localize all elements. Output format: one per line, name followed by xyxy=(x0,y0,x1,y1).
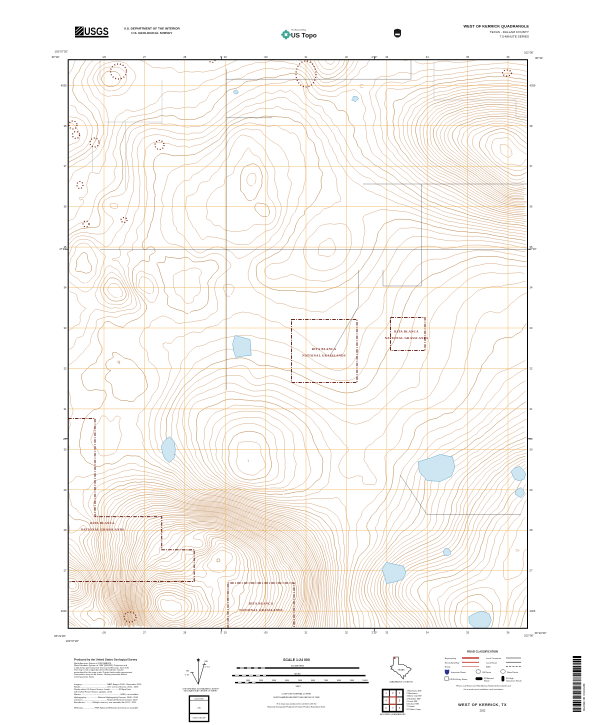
svg-text:NATIONAL GRASSLANDS: NATIONAL GRASSLANDS xyxy=(81,527,125,531)
svg-text:ADJOINING QUADRANGLES: ADJOINING QUADRANGLES xyxy=(380,713,406,716)
svg-text:Route: Route xyxy=(484,679,490,682)
svg-text:FEET: FEET xyxy=(296,686,302,688)
svg-text:36°22'30": 36°22'30" xyxy=(535,631,547,635)
svg-text:3 Boise City SW: 3 Boise City SW xyxy=(407,695,422,698)
svg-text:US Topo: US Topo xyxy=(291,33,317,40)
svg-text:Wetlands.....................F: Wetlands.....................FWS Nationa… xyxy=(74,706,139,709)
svg-text:NATIONAL GRASSLANDS: NATIONAL GRASSLANDS xyxy=(302,353,346,357)
svg-text:Imagery.......................: Imagery.................................… xyxy=(74,683,142,686)
svg-text:4039: 4039 xyxy=(530,83,536,87)
svg-text:entering private lands.: entering private lands. xyxy=(74,675,95,678)
svg-text:NORTH AMERICAN VERTICAL DATUM: NORTH AMERICAN VERTICAL DATUM OF 1988 xyxy=(274,696,321,699)
svg-text:36°30': 36°30' xyxy=(52,55,60,59)
svg-text:WEST OF KERRICK QUADRANGLE: WEST OF KERRICK QUADRANGLE xyxy=(464,24,530,29)
svg-text:US Route: US Route xyxy=(482,671,492,674)
svg-text:7.5-MINUTE SERIES: 7.5-MINUTE SERIES xyxy=(500,35,529,39)
svg-text:25': 25' xyxy=(530,437,534,441)
svg-text:QUADRANGLE LOCATION: QUADRANGLE LOCATION xyxy=(389,680,413,683)
svg-text:Interstate Route: Interstate Route xyxy=(451,671,467,674)
svg-text:MN: MN xyxy=(205,661,209,663)
svg-text:Expressway: Expressway xyxy=(445,657,457,660)
svg-text:for current travel conditions: for current travel conditions and restri… xyxy=(464,688,504,691)
svg-text:4026: 4026 xyxy=(61,609,67,613)
svg-text:102°00': 102°00' xyxy=(524,50,534,54)
svg-text:Contours......................: Contours................................… xyxy=(74,698,138,701)
svg-text:36°22'30": 36°22'30" xyxy=(54,634,66,638)
svg-text:This map was produced to confo: This map was produced to conform with th… xyxy=(276,703,317,706)
svg-text:WEST OF KERRICK, TX: WEST OF KERRICK, TX xyxy=(458,703,507,707)
svg-text:4WD: 4WD xyxy=(486,667,491,669)
svg-text:RITA BLANCA: RITA BLANCA xyxy=(312,347,337,351)
svg-text:Clearance Route: Clearance Route xyxy=(506,679,522,682)
svg-text:U.S. GEOLOGICAL SURVEY: U.S. GEOLOGICAL SURVEY xyxy=(131,31,173,35)
svg-text:Roads.........................: Roads...................................… xyxy=(74,685,139,688)
svg-text:102°00': 102°00' xyxy=(524,633,534,637)
svg-text:4026: 4026 xyxy=(530,609,536,613)
svg-text:State Route: State Route xyxy=(507,671,519,674)
svg-text:Produced by the United States: Produced by the United States Geological… xyxy=(74,657,138,661)
svg-text:726: 726 xyxy=(102,55,106,59)
svg-text:730: 730 xyxy=(264,55,268,59)
svg-text:8 Chilton Camp: 8 Chilton Camp xyxy=(407,708,422,711)
svg-text:Ramp: Ramp xyxy=(445,667,451,669)
svg-text:2022: 2022 xyxy=(480,709,486,713)
svg-text:Boundaries..............Multip: Boundaries..............Multiple sources… xyxy=(74,701,137,704)
svg-text:102°07'30": 102°07'30" xyxy=(54,50,68,54)
svg-text:The National Map: The National Map xyxy=(291,28,306,31)
svg-text:5 Lautz NW: 5 Lautz NW xyxy=(407,700,418,703)
svg-text:Local Road: Local Road xyxy=(486,662,497,664)
svg-text:4039: 4039 xyxy=(61,83,67,87)
svg-text:25': 25' xyxy=(63,437,67,441)
svg-text:Names.........................: Names...................................… xyxy=(74,693,139,696)
svg-text:RITA BLANCA: RITA BLANCA xyxy=(394,330,419,334)
svg-text:USGS STORE: USGS STORE xyxy=(194,698,203,700)
svg-text:1° 31': 1° 31' xyxy=(185,675,191,677)
svg-text:726: 726 xyxy=(102,631,106,635)
svg-text:U.S. DEPARTMENT OF THE INTERIO: U.S. DEPARTMENT OF THE INTERIOR xyxy=(124,26,181,30)
svg-text:Roads within US Forest Service: Roads within US Forest Service Lands....… xyxy=(74,688,132,691)
svg-text:Local Connector: Local Connector xyxy=(486,657,501,660)
svg-text:with limited Forest Service up: with limited Forest Service updates, 201… xyxy=(74,691,113,694)
svg-text:2'30": 2'30" xyxy=(372,631,378,635)
svg-text:Secondary Hwy: Secondary Hwy xyxy=(445,661,461,664)
svg-text:Hydrography...................: Hydrography.....................National… xyxy=(74,696,139,699)
svg-text:National Geospatial Program US: National Geospatial Program US Topo Prod… xyxy=(267,706,326,709)
svg-text:36°30': 36°30' xyxy=(535,56,543,60)
svg-text:27'30": 27'30" xyxy=(530,247,537,251)
svg-text:NATIONAL GRASSLANDS: NATIONAL GRASSLANDS xyxy=(239,608,283,612)
svg-text:Please call Kiowa and Rita Bla: Please call Kiowa and Rita Blanca Nation… xyxy=(456,685,511,688)
svg-text:730: 730 xyxy=(264,631,268,635)
svg-text:ROAD CLASSIFICATION: ROAD CLASSIFICATION xyxy=(467,649,498,653)
svg-text:TEXAS - DALLAM COUNTY: TEXAS - DALLAM COUNTY xyxy=(490,30,529,34)
svg-text:0° 14': 0° 14' xyxy=(205,666,211,668)
svg-text:102°07'30": 102°07'30" xyxy=(65,639,79,643)
svg-text:FS/Pvt Entry Route: FS/Pvt Entry Route xyxy=(450,678,469,681)
svg-text:RITA BLANCA: RITA BLANCA xyxy=(249,602,274,606)
svg-text:TEXAS: TEXAS xyxy=(397,668,405,671)
svg-text:SCALE 1:24 000: SCALE 1:24 000 xyxy=(283,658,310,662)
svg-text:NATIONAL GRASSLANDS: NATIONAL GRASSLANDS xyxy=(385,336,429,340)
svg-text:CONTOUR INTERVAL 10 FEET: CONTOUR INTERVAL 10 FEET xyxy=(282,692,312,695)
svg-text:NGA REF NO. USGSX24K: NGA REF NO. USGSX24K xyxy=(583,683,586,711)
svg-text:DECLINATION AT CENTER OF SHEET: DECLINATION AT CENTER OF SHEET xyxy=(184,690,218,693)
svg-text:27'30": 27'30" xyxy=(59,247,66,251)
svg-text:4 Stateline NW: 4 Stateline NW xyxy=(407,697,421,700)
svg-text:RITA BLANCA: RITA BLANCA xyxy=(90,521,115,525)
svg-text:2'30": 2'30" xyxy=(372,55,378,59)
